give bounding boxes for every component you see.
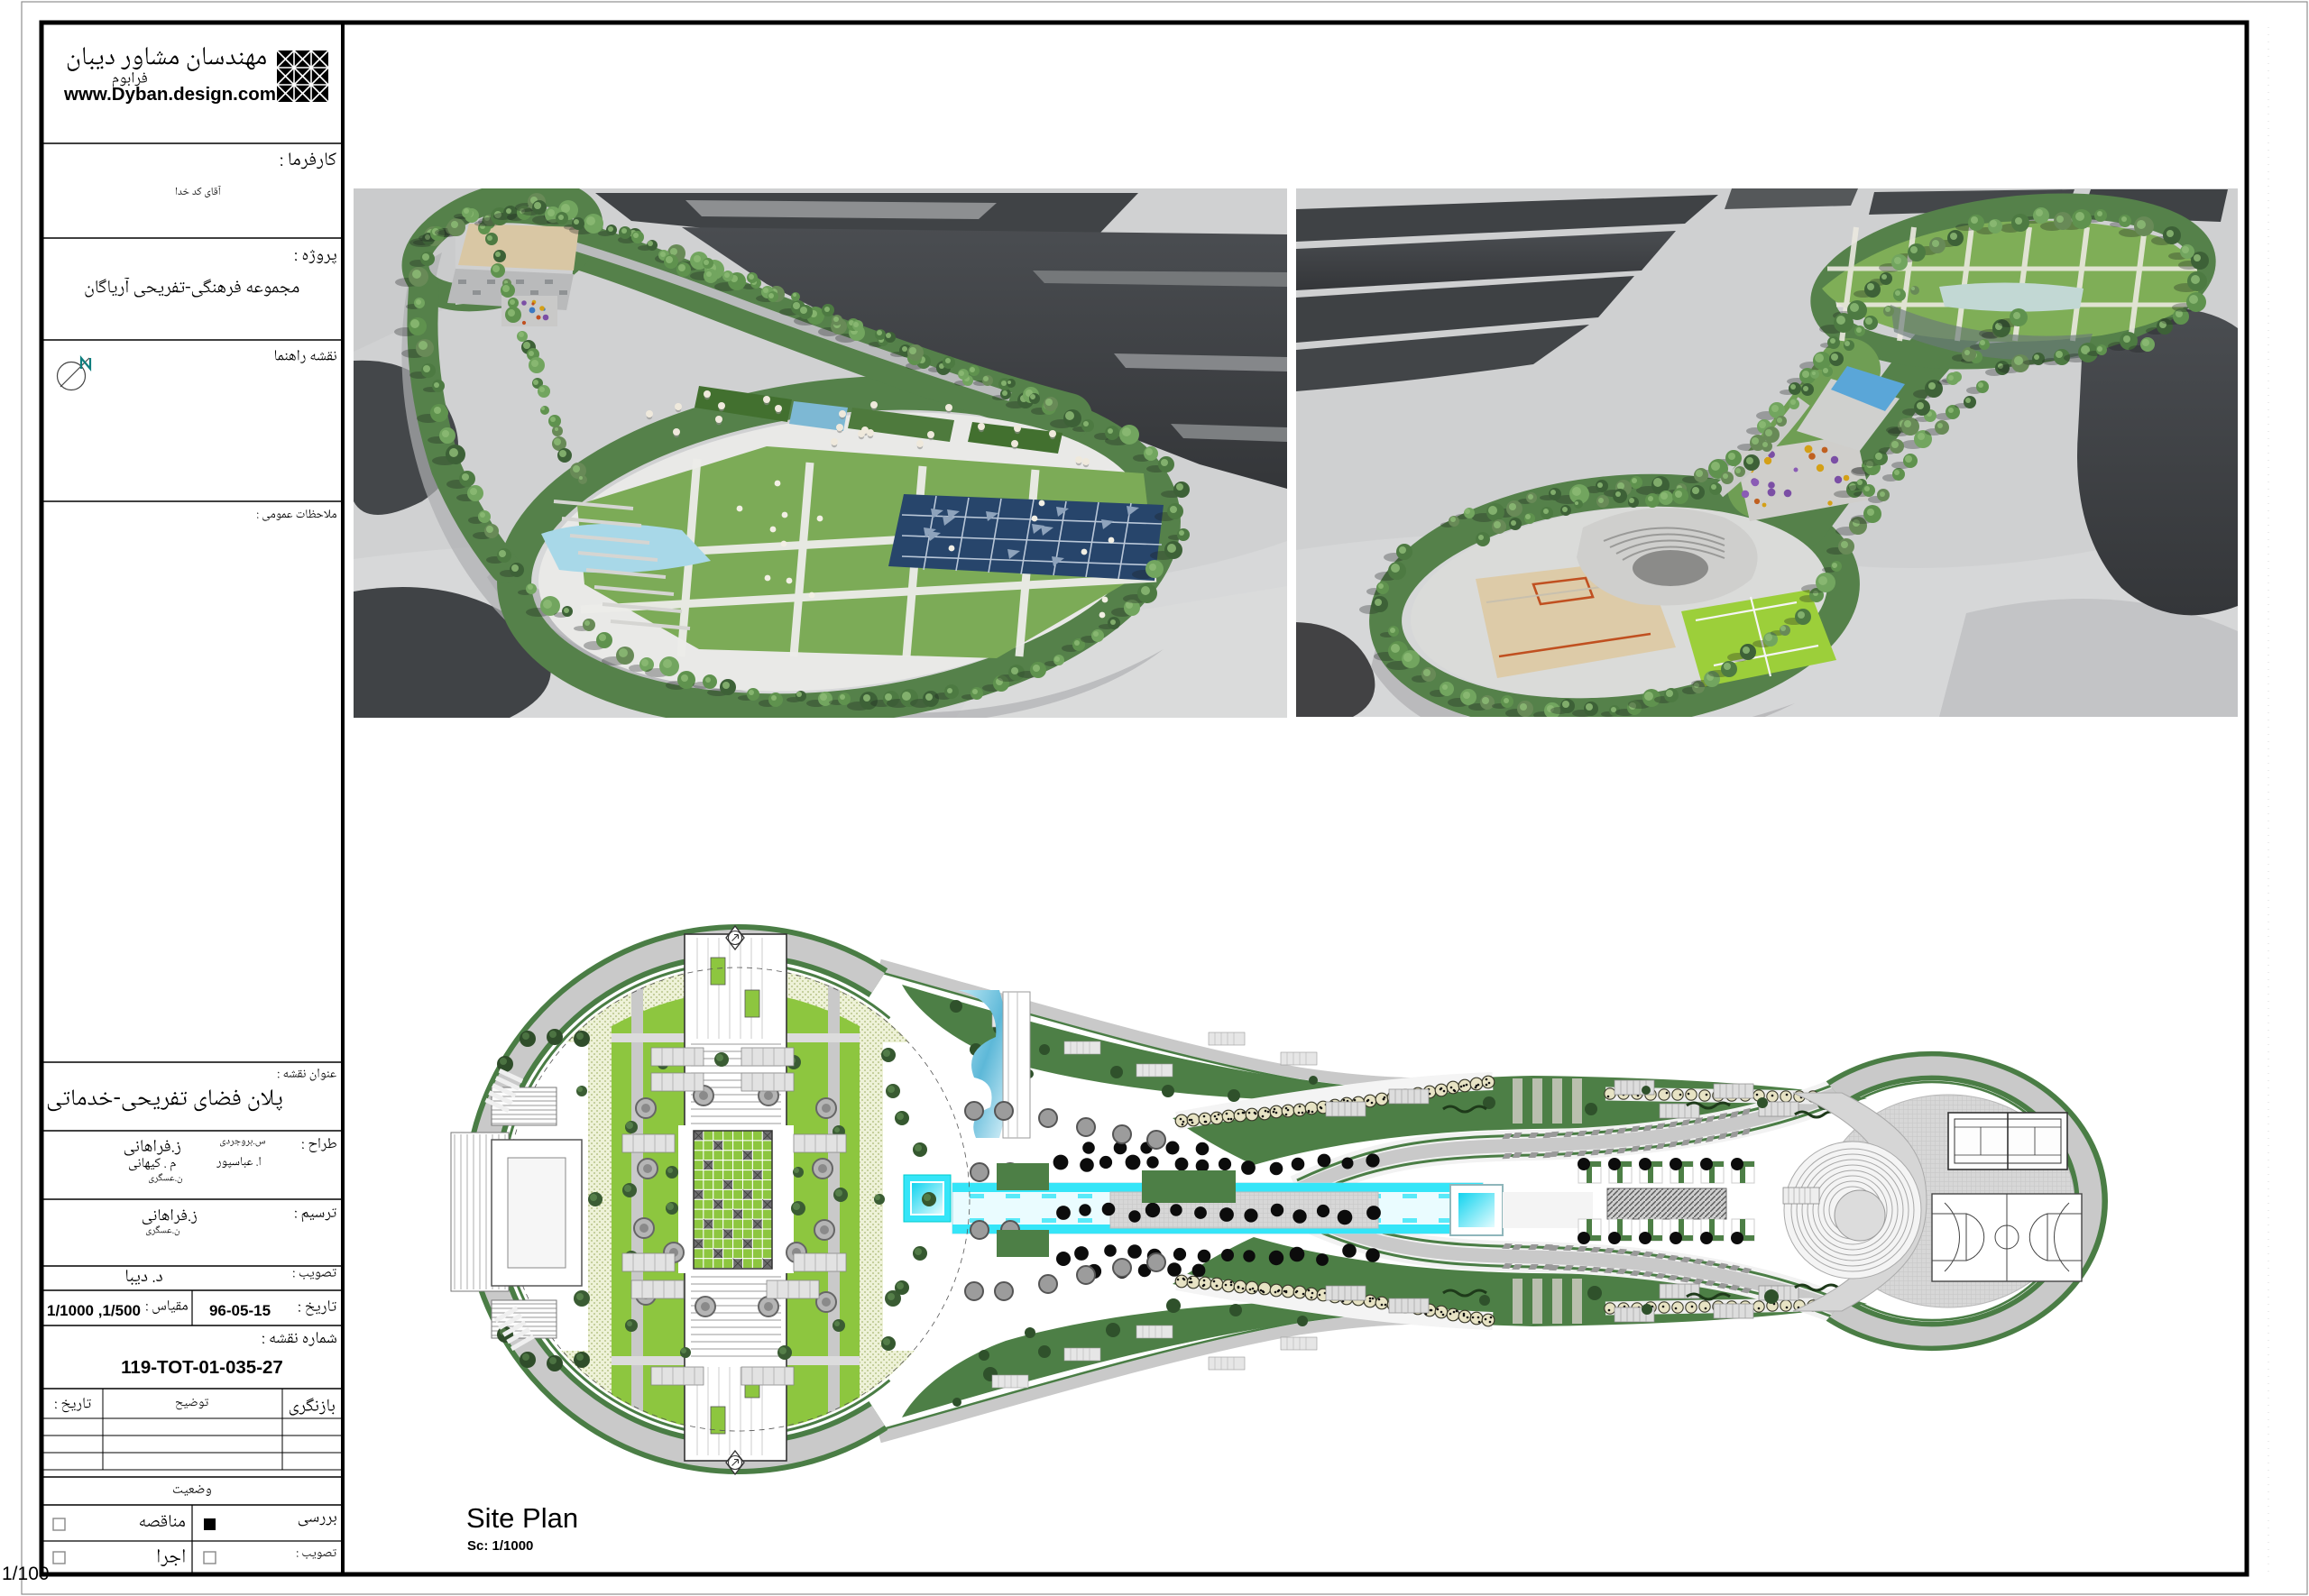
svg-text:1/100: 1/100	[2, 1564, 50, 1584]
svg-text:119-TOT-01-035-27: 119-TOT-01-035-27	[121, 1357, 283, 1378]
svg-text:1/1000 ,1/500: 1/1000 ,1/500	[47, 1302, 141, 1319]
svg-text:Sc: 1/1000: Sc: 1/1000	[467, 1538, 533, 1554]
svg-text:96-05-15: 96-05-15	[209, 1302, 271, 1319]
svg-text:Site Plan: Site Plan	[466, 1502, 578, 1534]
svg-text:www.Dyban.design.com: www.Dyban.design.com	[63, 84, 276, 105]
